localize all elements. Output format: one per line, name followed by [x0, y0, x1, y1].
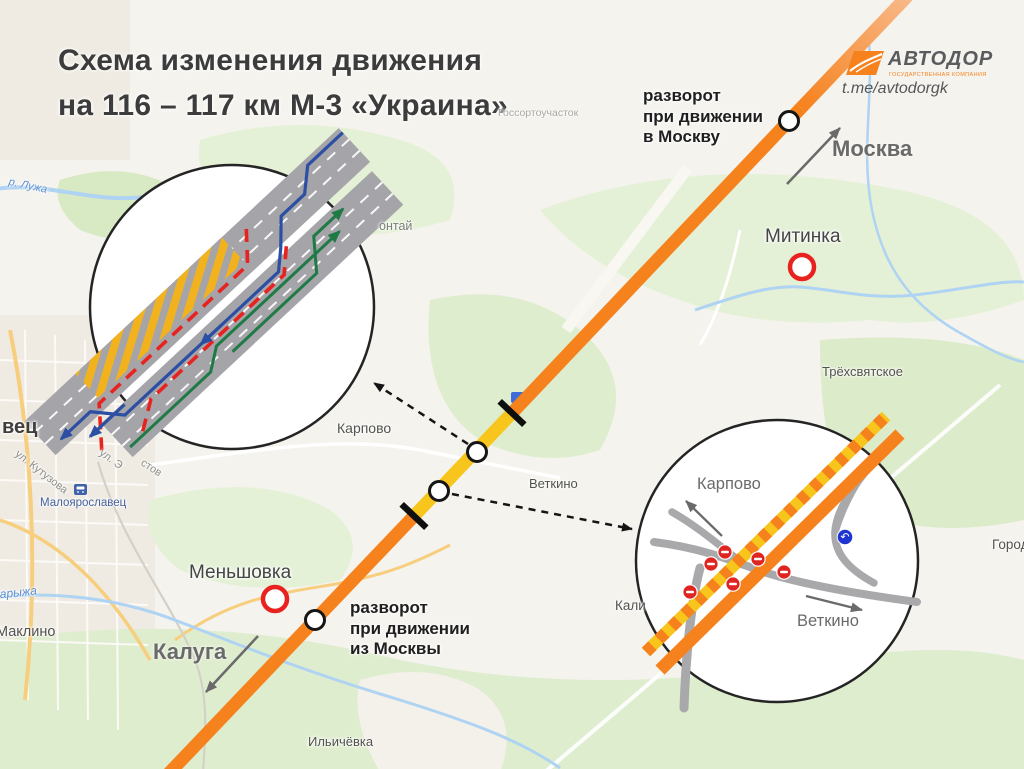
uturn-marker-from-moscow	[306, 611, 325, 630]
map-label-gorode-fragment: Городе	[992, 537, 1024, 552]
note-line: при движении	[643, 107, 763, 128]
map-label-maklino: Маклино	[0, 624, 55, 640]
map-label-ontai-fragment: онтай	[379, 219, 412, 233]
note-line: в Москву	[643, 127, 763, 148]
interchange-label-karpovo: Карпово	[697, 475, 761, 494]
map-label-karpovo: Карпово	[337, 420, 391, 436]
map-label-vetkino: Веткино	[529, 476, 578, 491]
direction-label-moscow: Москва	[832, 136, 912, 162]
worksite-marker-north	[468, 443, 487, 462]
map-label-menshovka: Меньшовка	[189, 562, 291, 584]
map-label-kali-fragment: Кали	[615, 598, 646, 613]
logo-brand-name: АВТОДОР	[888, 48, 993, 71]
svg-text:↶: ↶	[840, 531, 849, 544]
note-uturn-from-moscow: разворот при движении из Москвы	[350, 598, 470, 660]
urban-area-northwest	[0, 0, 130, 160]
telegram-handle[interactable]: t.me/avtodorgk	[842, 80, 948, 98]
mandatory-uturn-sign: ↶	[837, 529, 853, 545]
uturn-marker-to-moscow	[780, 112, 799, 131]
page-title-line1: Схема изменения движения	[58, 44, 482, 78]
logo-tagline: ГОСУДАРСТВЕННАЯ КОМПАНИЯ	[889, 72, 987, 78]
train-station-icon	[74, 484, 87, 495]
infographic-canvas: ↶ Схема изменения движения на 116 – 117 …	[0, 0, 1024, 769]
note-uturn-to-moscow: разворот при движении в Москву	[643, 86, 763, 148]
note-line: разворот	[643, 86, 763, 107]
map-label-trekhsvyatskoye: Трёхсвятское	[822, 364, 903, 379]
interchange-label-vetkino: Веткино	[797, 612, 859, 631]
note-line: при движении	[350, 619, 470, 640]
map-label-city-fragment: вец	[2, 416, 37, 439]
map-label-gossort: Госсортоучасток	[498, 107, 578, 119]
avtodor-logo: АВТОДОР ГОСУДАРСТВЕННАЯ КОМПАНИЯ t.me/av…	[840, 46, 1020, 96]
mitinka-ring-marker	[790, 255, 814, 279]
map-label-ilyichyovka: Ильичёвка	[308, 734, 373, 749]
map-label-station: Малоярославец	[40, 497, 126, 509]
note-line: разворот	[350, 598, 470, 619]
menshovka-ring-marker	[263, 587, 287, 611]
direction-label-kaluga: Калуга	[153, 639, 226, 665]
note-line: из Москвы	[350, 639, 470, 660]
worksite-marker-south	[430, 482, 449, 501]
map-label-mitinka: Митинка	[765, 226, 841, 248]
page-title-line2: на 116 – 117 км М-3 «Украина»	[58, 89, 508, 123]
